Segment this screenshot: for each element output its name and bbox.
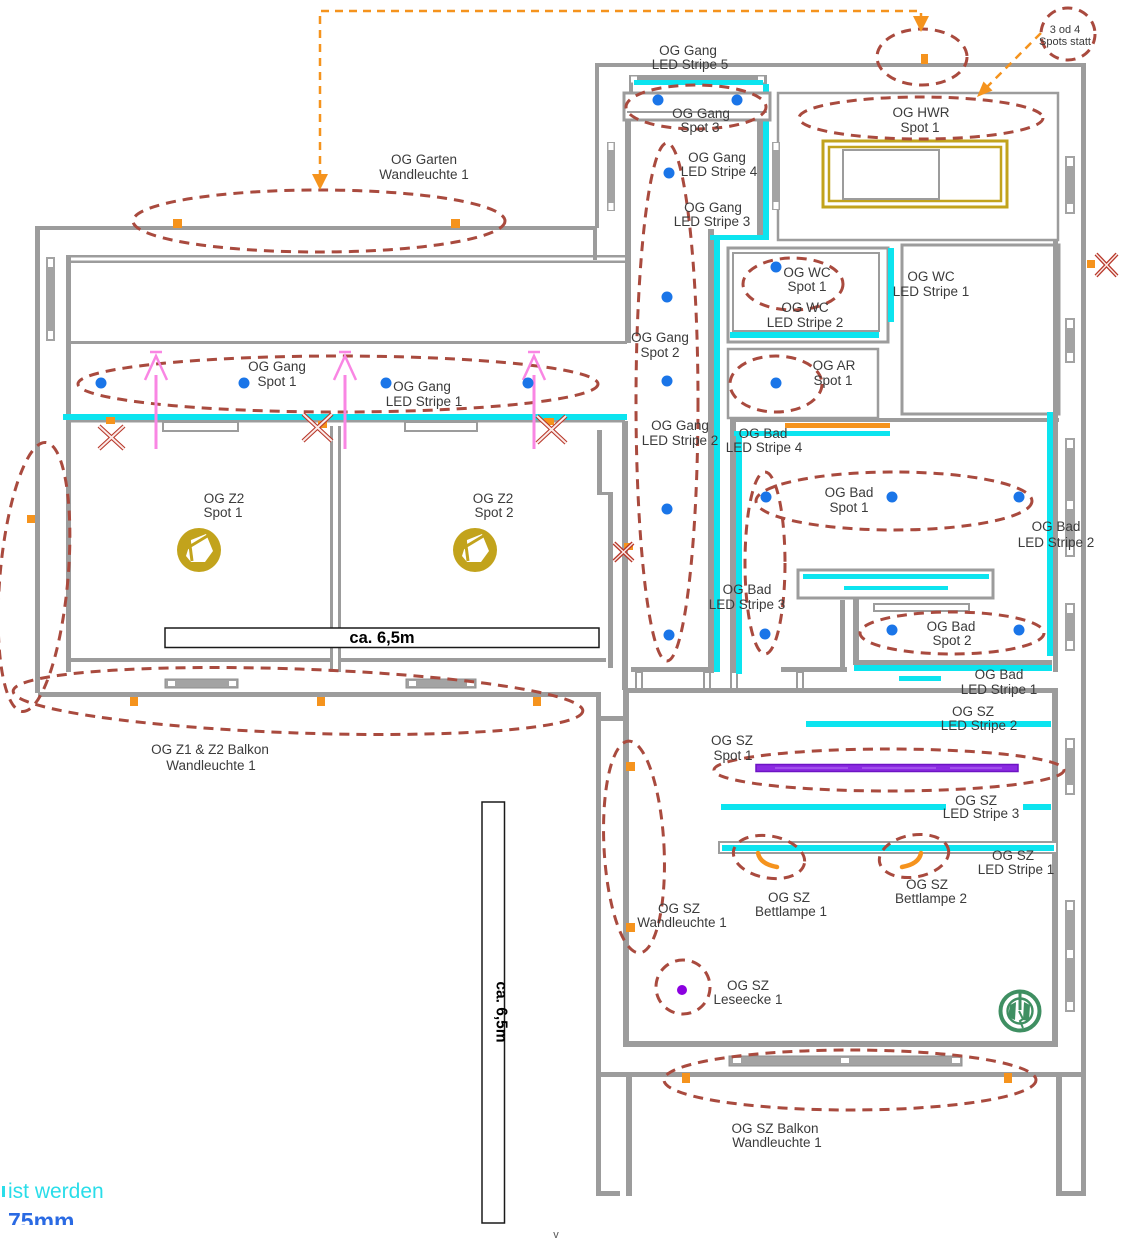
svg-text:OG WC: OG WC xyxy=(783,265,830,280)
svg-text:OG Bad: OG Bad xyxy=(927,619,976,634)
svg-text:ca. 6,5m: ca. 6,5m xyxy=(493,981,510,1042)
svg-text:Spot 2: Spot 2 xyxy=(474,505,513,520)
svg-text:LED Stripe 1: LED Stripe 1 xyxy=(386,394,463,409)
svg-text:OG Gang: OG Gang xyxy=(688,150,746,165)
svg-text:OG SZ: OG SZ xyxy=(658,901,700,916)
svg-text:OG Bad: OG Bad xyxy=(739,426,788,441)
svg-text:OG Gang: OG Gang xyxy=(248,359,306,374)
svg-text:ist werden: ist werden xyxy=(8,1180,104,1203)
svg-text:LED Stripe 4: LED Stripe 4 xyxy=(681,164,758,179)
svg-text:OG Gang: OG Gang xyxy=(659,43,717,58)
svg-text:Spot 1: Spot 1 xyxy=(813,373,852,388)
svg-text:Spot 2: Spot 2 xyxy=(640,345,679,360)
svg-text:OG Gang: OG Gang xyxy=(684,200,742,215)
svg-text:LED Stripe 1: LED Stripe 1 xyxy=(978,862,1055,877)
svg-text:Wandleuchte 1: Wandleuchte 1 xyxy=(732,1135,822,1150)
svg-text:OG Z2: OG Z2 xyxy=(473,491,514,506)
svg-text:OG Z2: OG Z2 xyxy=(204,491,245,506)
svg-text:OG SZ: OG SZ xyxy=(711,733,753,748)
svg-text:OG Bad: OG Bad xyxy=(723,582,772,597)
svg-text:Spot 1: Spot 1 xyxy=(713,748,752,763)
svg-text:Leseecke 1: Leseecke 1 xyxy=(713,992,782,1007)
svg-text:Spot 1: Spot 1 xyxy=(787,279,826,294)
svg-text:OG Z1 & Z2 Balkon: OG Z1 & Z2 Balkon xyxy=(151,742,269,757)
svg-text:OG WC: OG WC xyxy=(907,269,954,284)
svg-text:LED Stripe 4: LED Stripe 4 xyxy=(726,440,803,455)
svg-text:LED Stripe 1: LED Stripe 1 xyxy=(893,284,970,299)
svg-text:OG Bad: OG Bad xyxy=(1032,519,1081,534)
svg-text:Wandleuchte 1: Wandleuchte 1 xyxy=(379,167,469,182)
svg-text:Spot 1: Spot 1 xyxy=(257,374,296,389)
svg-text:LED Stripe 2: LED Stripe 2 xyxy=(941,718,1018,733)
svg-text:LED Stripe 3: LED Stripe 3 xyxy=(674,214,751,229)
svg-text:Spot 1: Spot 1 xyxy=(829,500,868,515)
svg-text:OG Gang: OG Gang xyxy=(651,418,709,433)
svg-text:v: v xyxy=(553,1229,559,1240)
svg-text:Spot 2: Spot 2 xyxy=(932,633,971,648)
svg-text:OG Gang: OG Gang xyxy=(631,330,689,345)
svg-text:OG HWR: OG HWR xyxy=(893,105,950,120)
svg-text:Spot 1: Spot 1 xyxy=(900,120,939,135)
svg-text:OG SZ: OG SZ xyxy=(906,877,948,892)
svg-text:OG SZ: OG SZ xyxy=(992,848,1034,863)
svg-text:LED Stripe 2: LED Stripe 2 xyxy=(1018,535,1095,550)
svg-text:OG Bad: OG Bad xyxy=(825,485,874,500)
svg-text:Bettlampe 1: Bettlampe 1 xyxy=(755,904,827,919)
svg-text:OG Garten: OG Garten xyxy=(391,152,457,167)
svg-text:LED Stripe 2: LED Stripe 2 xyxy=(767,315,844,330)
svg-text:OG AR: OG AR xyxy=(813,358,856,373)
svg-text:Bettlampe 2: Bettlampe 2 xyxy=(895,891,967,906)
svg-text:LED Stripe 5: LED Stripe 5 xyxy=(652,57,729,72)
svg-text:OG WC: OG WC xyxy=(781,300,828,315)
svg-text:Wandleuchte 1: Wandleuchte 1 xyxy=(637,915,727,930)
svg-text:Spot 1: Spot 1 xyxy=(203,505,242,520)
svg-text:LED Stripe 2: LED Stripe 2 xyxy=(642,433,719,448)
svg-text:OG SZ: OG SZ xyxy=(727,978,769,993)
svg-text:OG Gang: OG Gang xyxy=(672,106,730,121)
svg-text:LED Stripe 3: LED Stripe 3 xyxy=(709,597,786,612)
svg-text:OG SZ Balkon: OG SZ Balkon xyxy=(731,1121,818,1136)
svg-text:LED Stripe 1: LED Stripe 1 xyxy=(961,682,1038,697)
svg-text:OG Bad: OG Bad xyxy=(975,667,1024,682)
svg-text:LED Stripe 3: LED Stripe 3 xyxy=(943,806,1020,821)
svg-text:OG SZ: OG SZ xyxy=(768,890,810,905)
svg-text:Spots statt: Spots statt xyxy=(1039,36,1091,48)
svg-text:OG Gang: OG Gang xyxy=(393,379,451,394)
svg-text:3 od 4: 3 od 4 xyxy=(1050,24,1081,36)
svg-text:ca. 6,5m: ca. 6,5m xyxy=(349,629,414,647)
svg-text:Wandleuchte 1: Wandleuchte 1 xyxy=(166,758,256,773)
svg-text:OG SZ: OG SZ xyxy=(952,704,994,719)
svg-text:Spot 3: Spot 3 xyxy=(680,120,719,135)
